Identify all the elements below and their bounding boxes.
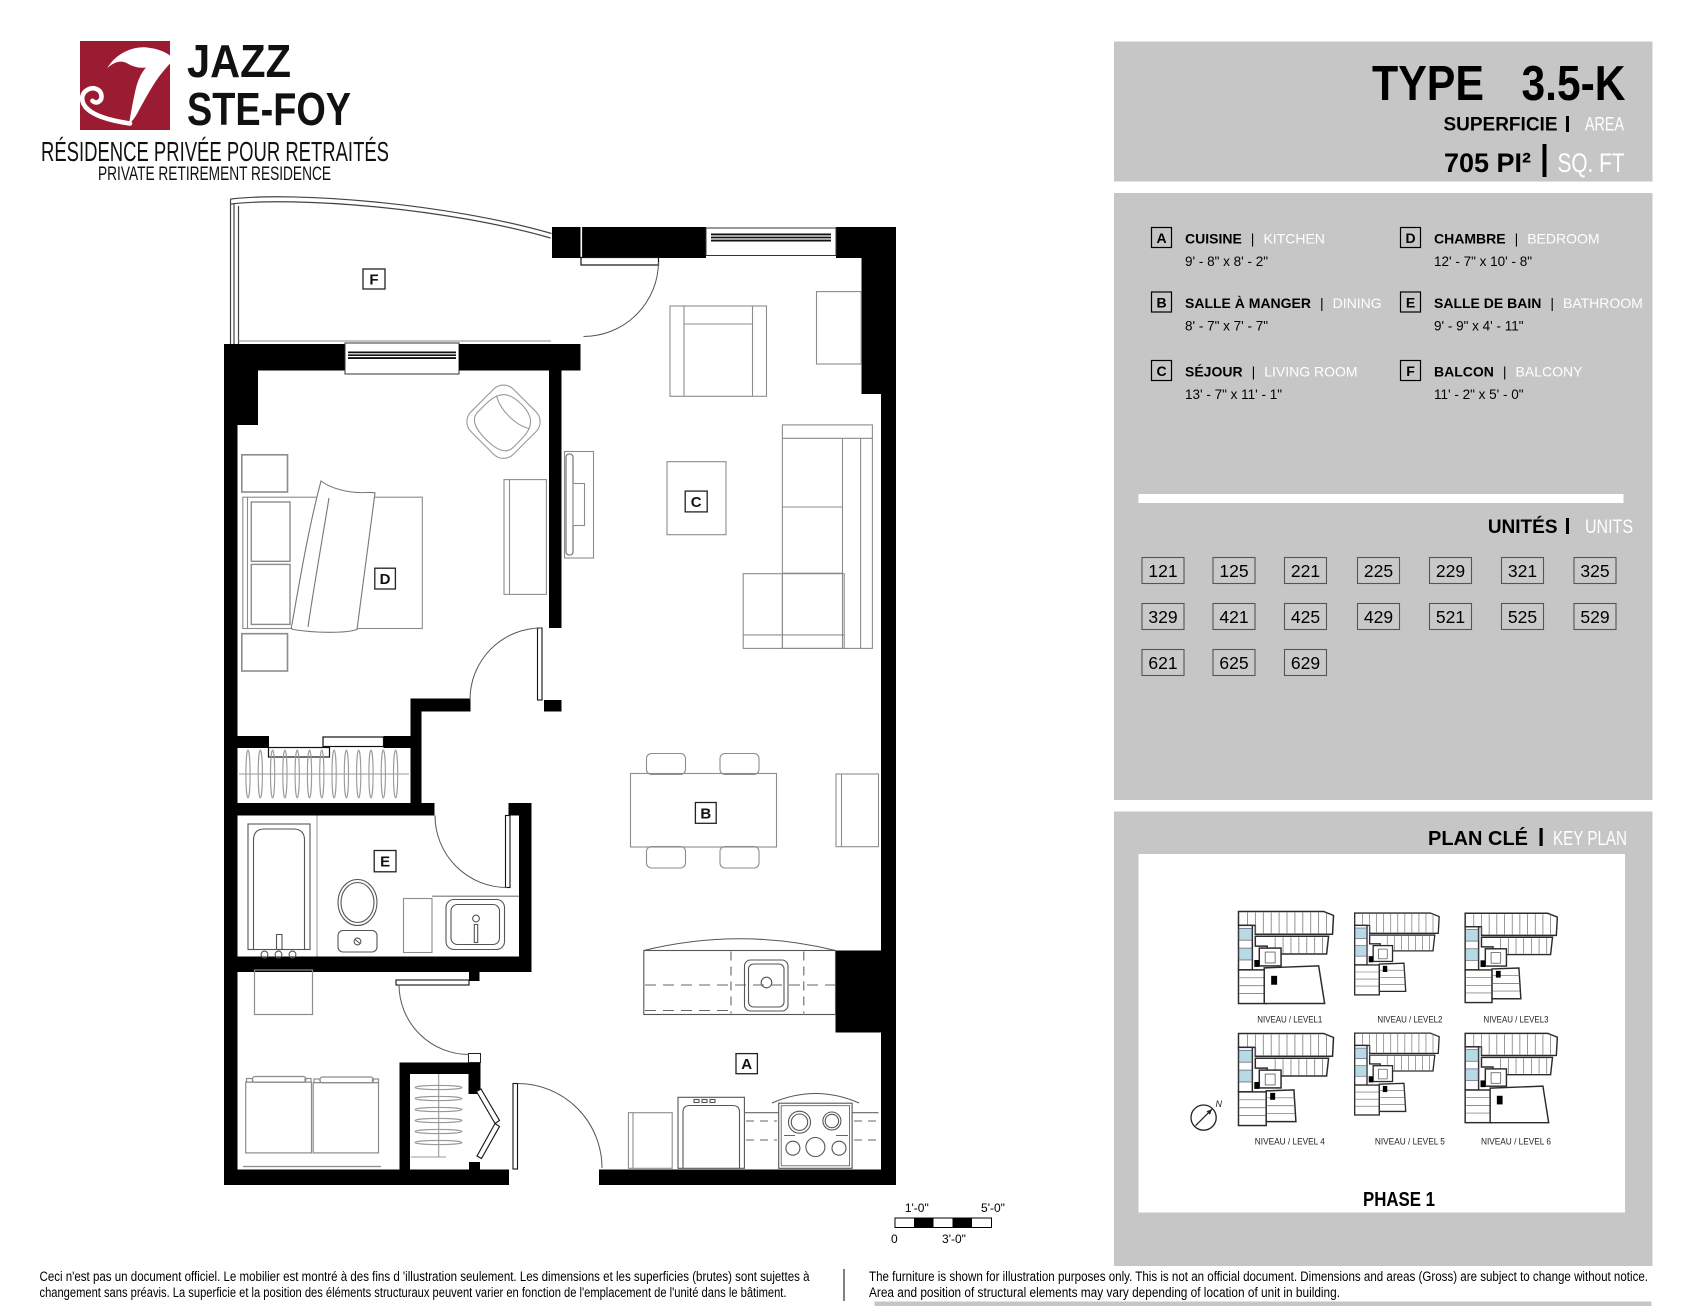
svg-text:A: A — [1156, 230, 1166, 246]
svg-text:Ceci n'est pas un document off: Ceci n'est pas un document officiel. Le … — [40, 1269, 810, 1284]
svg-text:325: 325 — [1580, 561, 1609, 581]
svg-text:SQ. FT: SQ. FT — [1558, 148, 1625, 178]
svg-text:The furniture is shown for ill: The furniture is shown for illustration … — [869, 1269, 1648, 1284]
svg-text:SUPERFICIE: SUPERFICIE — [1443, 115, 1557, 136]
svg-text:3'-0": 3'-0" — [942, 1232, 966, 1246]
svg-text:SÉJOUR|LIVING ROOM: SÉJOUR|LIVING ROOM — [1185, 364, 1358, 380]
svg-text:8' - 7" x 7' - 7": 8' - 7" x 7' - 7" — [1185, 319, 1268, 334]
svg-text:Area and position of structura: Area and position of structural elements… — [869, 1285, 1340, 1300]
svg-text:F: F — [369, 272, 378, 289]
svg-text:329: 329 — [1148, 607, 1177, 627]
svg-text:125: 125 — [1219, 561, 1248, 581]
svg-text:UNITÉS: UNITÉS — [1488, 516, 1558, 538]
svg-text:1'-0": 1'-0" — [905, 1201, 929, 1215]
svg-text:F: F — [1406, 363, 1415, 379]
svg-text:STE-FOY: STE-FOY — [187, 83, 351, 135]
svg-text:425: 425 — [1291, 607, 1320, 627]
svg-text:N: N — [1216, 1099, 1223, 1109]
svg-text:525: 525 — [1508, 607, 1537, 627]
svg-text:321: 321 — [1508, 561, 1537, 581]
svg-text:C: C — [1156, 363, 1166, 379]
svg-text:PRIVATE RETIREMENT RESIDENCE: PRIVATE RETIREMENT RESIDENCE — [98, 164, 331, 185]
svg-text:12' - 7" x 10' - 8": 12' - 7" x 10' - 8" — [1434, 254, 1532, 269]
svg-text:SALLE DE BAIN|BATHROOM: SALLE DE BAIN|BATHROOM — [1434, 295, 1643, 311]
svg-text:11' - 2" x 5' - 0": 11' - 2" x 5' - 0" — [1434, 387, 1524, 402]
svg-text:0: 0 — [891, 1232, 898, 1246]
svg-text:625: 625 — [1219, 653, 1248, 673]
svg-text:SALLE À MANGER|DINING: SALLE À MANGER|DINING — [1185, 295, 1382, 311]
svg-text:E: E — [1406, 295, 1415, 311]
svg-text:AREA: AREA — [1585, 115, 1624, 136]
svg-text:229: 229 — [1436, 561, 1465, 581]
svg-text:changement sans préavis. La su: changement sans préavis. La superficie e… — [40, 1285, 787, 1300]
svg-text:221: 221 — [1291, 561, 1320, 581]
svg-text:PLAN CLÉ: PLAN CLÉ — [1428, 827, 1528, 850]
svg-text:A: A — [741, 1056, 752, 1073]
svg-text:NIVEAU / LEVEL3: NIVEAU / LEVEL3 — [1484, 1015, 1549, 1026]
svg-text:225: 225 — [1364, 561, 1393, 581]
svg-text:JAZZ: JAZZ — [187, 35, 291, 87]
svg-text:521: 521 — [1436, 607, 1465, 627]
svg-text:CHAMBRE|BEDROOM: CHAMBRE|BEDROOM — [1434, 231, 1600, 247]
svg-text:705 PI²: 705 PI² — [1444, 148, 1531, 178]
svg-text:9' - 9" x 4' - 11": 9' - 9" x 4' - 11" — [1434, 319, 1524, 334]
svg-text:RÉSIDENCE PRIVÉE POUR RETRAITÉ: RÉSIDENCE PRIVÉE POUR RETRAITÉS — [41, 136, 389, 167]
svg-text:B: B — [700, 805, 711, 822]
svg-text:NIVEAU / LEVEL 5: NIVEAU / LEVEL 5 — [1375, 1137, 1445, 1148]
svg-text:3.5-K: 3.5-K — [1522, 57, 1626, 111]
svg-text:UNITS: UNITS — [1585, 517, 1633, 538]
svg-text:NIVEAU / LEVEL 6: NIVEAU / LEVEL 6 — [1481, 1137, 1551, 1148]
svg-text:PHASE 1: PHASE 1 — [1363, 1189, 1435, 1211]
svg-text:9' - 8" x 8' - 2": 9' - 8" x 8' - 2" — [1185, 254, 1268, 269]
svg-text:421: 421 — [1219, 607, 1248, 627]
svg-text:B: B — [1156, 295, 1166, 311]
svg-text:KEY PLAN: KEY PLAN — [1553, 828, 1627, 850]
svg-text:529: 529 — [1580, 607, 1609, 627]
svg-text:NIVEAU / LEVEL2: NIVEAU / LEVEL2 — [1377, 1015, 1442, 1026]
svg-text:429: 429 — [1364, 607, 1393, 627]
svg-text:C: C — [691, 494, 702, 511]
svg-text:E: E — [380, 854, 390, 871]
svg-text:NIVEAU / LEVEL1: NIVEAU / LEVEL1 — [1257, 1015, 1322, 1026]
svg-text:TYPE: TYPE — [1372, 57, 1484, 111]
svg-text:13' - 7" x 11' - 1": 13' - 7" x 11' - 1" — [1185, 387, 1282, 402]
svg-text:5'-0": 5'-0" — [981, 1201, 1005, 1215]
svg-text:121: 121 — [1148, 561, 1177, 581]
svg-text:621: 621 — [1148, 653, 1177, 673]
svg-text:NIVEAU / LEVEL 4: NIVEAU / LEVEL 4 — [1255, 1137, 1325, 1148]
svg-text:629: 629 — [1291, 653, 1320, 673]
svg-text:D: D — [380, 571, 391, 588]
svg-text:D: D — [1405, 230, 1415, 246]
